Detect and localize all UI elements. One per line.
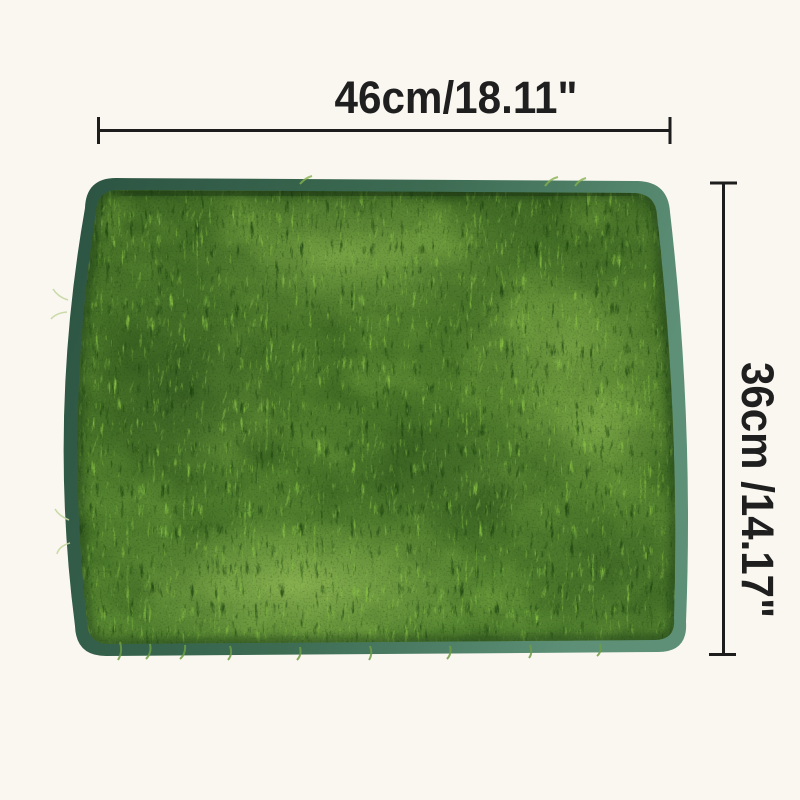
product-image-canvas: 46cm/18.11" 36cm /14.17" <box>0 0 800 800</box>
width-dimension-label: 46cm/18.11" <box>335 72 578 123</box>
height-dimension-label: 36cm /14.17" <box>732 362 783 618</box>
product-dimension-image: 46cm/18.11" 36cm /14.17" <box>0 0 800 800</box>
